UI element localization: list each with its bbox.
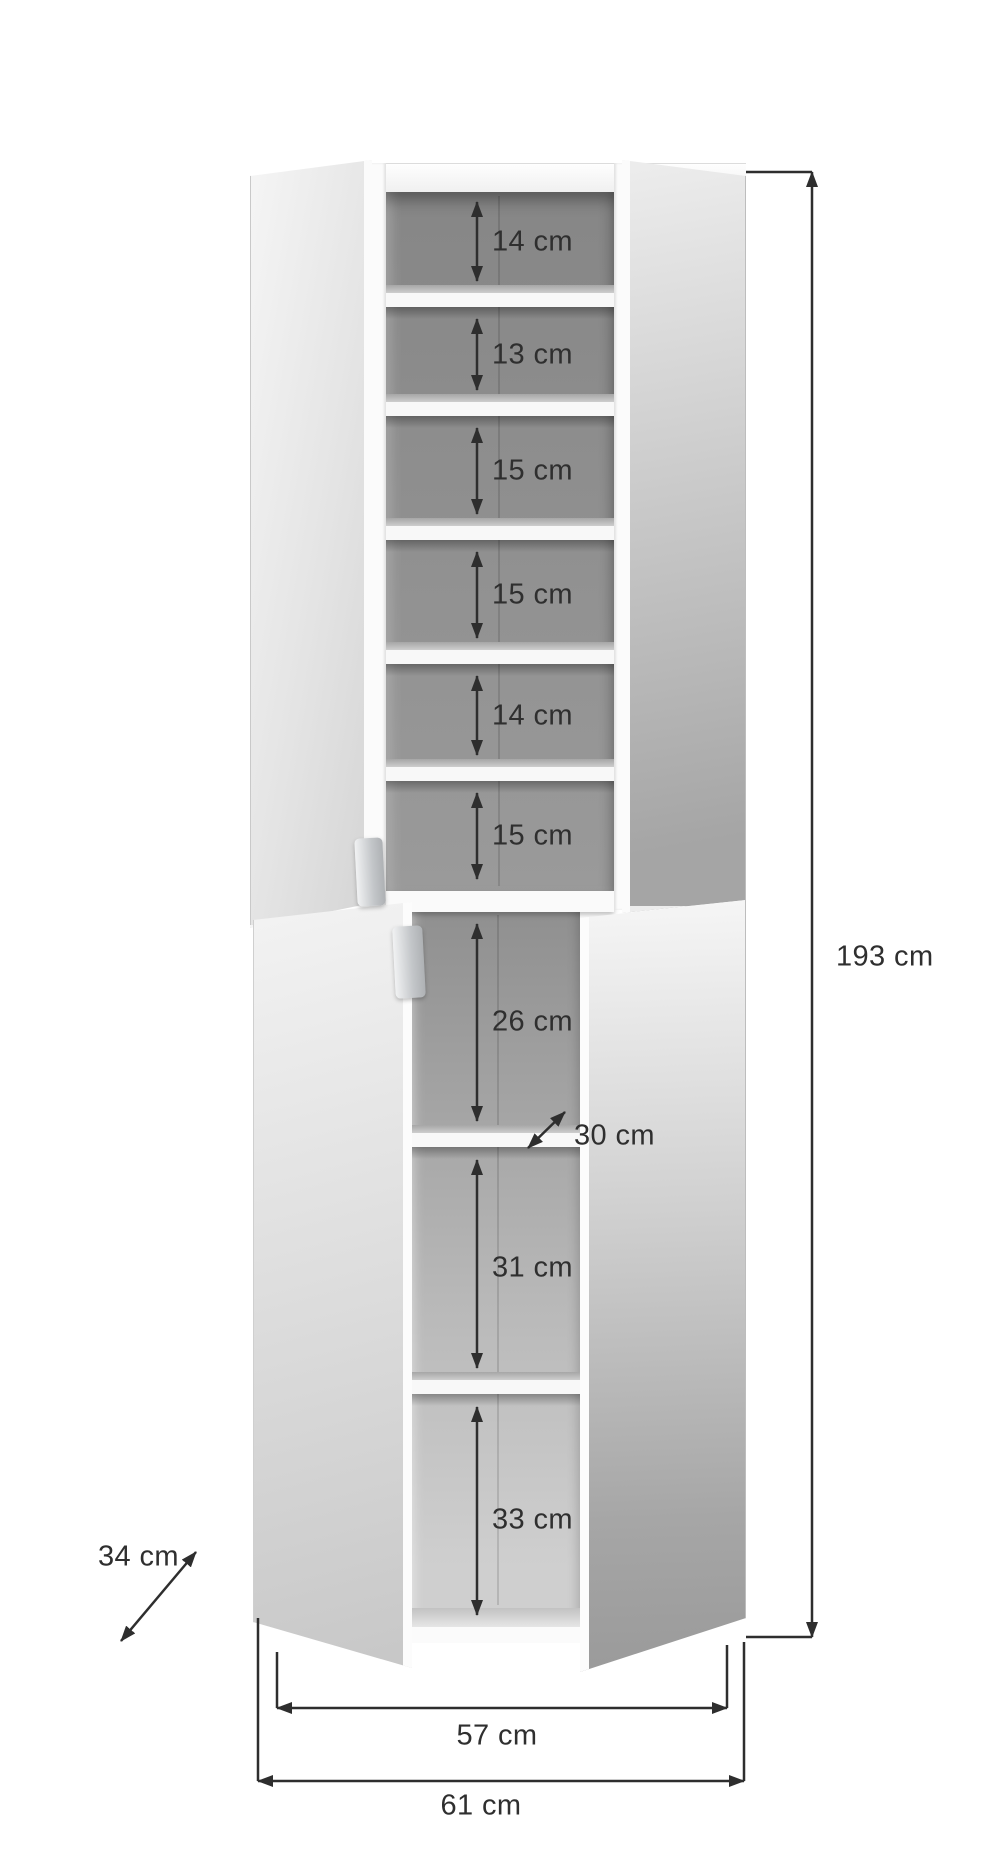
label-bottom-compartment-2: 31 cm <box>492 1252 573 1285</box>
label-top-compartment-2: 13 cm <box>492 339 573 372</box>
cabinet-dimension-diagram: 14 cm 13 cm 15 cm 15 cm 14 cm 15 cm 26 c… <box>0 0 984 1860</box>
label-bottom-compartment-1: 26 cm <box>492 1006 573 1039</box>
label-total-width: 61 cm <box>441 1790 522 1823</box>
label-top-compartment-1: 14 cm <box>492 226 573 259</box>
label-total-height: 193 cm <box>836 941 934 974</box>
label-top-compartment-3: 15 cm <box>492 455 573 488</box>
label-top-compartment-6: 15 cm <box>492 820 573 853</box>
label-total-depth: 34 cm <box>98 1541 179 1574</box>
dimension-lines-overlay <box>0 0 984 1860</box>
label-shelf-depth: 30 cm <box>574 1120 655 1153</box>
label-top-compartment-5: 14 cm <box>492 700 573 733</box>
label-bottom-compartment-3: 33 cm <box>492 1504 573 1537</box>
arrow-shelf-depth-30cm <box>528 1112 565 1148</box>
label-inner-width: 57 cm <box>457 1720 538 1753</box>
label-top-compartment-4: 15 cm <box>492 579 573 612</box>
